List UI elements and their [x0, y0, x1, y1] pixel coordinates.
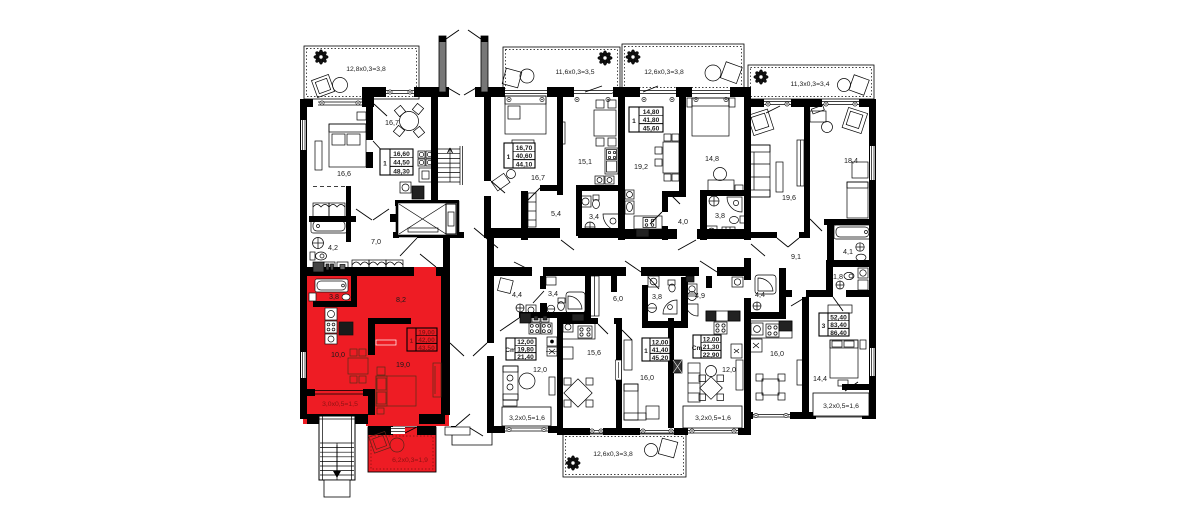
svg-text:12,00: 12,00 [652, 339, 669, 346]
svg-text:11,6x0,3=3,5: 11,6x0,3=3,5 [556, 69, 595, 76]
svg-text:12,00: 12,00 [703, 336, 720, 343]
svg-text:15,1: 15,1 [578, 157, 592, 166]
svg-text:43,50: 43,50 [418, 345, 435, 352]
svg-text:1: 1 [644, 348, 648, 355]
svg-text:3,0x0,5=1,5: 3,0x0,5=1,5 [322, 401, 358, 408]
svg-text:16,0: 16,0 [770, 349, 784, 358]
svg-text:4,4: 4,4 [512, 290, 522, 299]
svg-text:14,80: 14,80 [643, 109, 660, 116]
svg-text:3,2x0,5=1,6: 3,2x0,5=1,6 [823, 403, 859, 410]
svg-text:4,1: 4,1 [843, 247, 853, 256]
svg-text:21,40: 21,40 [517, 354, 534, 361]
svg-text:19,00: 19,00 [418, 329, 435, 336]
svg-text:15,6: 15,6 [587, 348, 601, 357]
svg-text:19,2: 19,2 [634, 162, 648, 171]
svg-text:3,8: 3,8 [715, 211, 725, 220]
svg-text:3,4: 3,4 [548, 289, 558, 298]
svg-text:41,40: 41,40 [652, 347, 669, 354]
svg-text:52,40: 52,40 [830, 314, 847, 321]
svg-text:6,2x0,3=1,9: 6,2x0,3=1,9 [392, 457, 428, 464]
svg-text:1,8: 1,8 [833, 272, 843, 281]
svg-text:44,10: 44,10 [516, 161, 533, 168]
svg-text:12,6x0,3=3,8: 12,6x0,3=3,8 [644, 69, 684, 76]
svg-text:19,80: 19,80 [517, 347, 534, 354]
svg-text:12,0: 12,0 [533, 365, 547, 374]
svg-text:1: 1 [383, 161, 387, 168]
svg-text:14,8: 14,8 [705, 154, 719, 163]
svg-text:12,8x0,3=3,8: 12,8x0,3=3,8 [346, 66, 386, 73]
svg-text:16,70: 16,70 [516, 145, 533, 152]
svg-text:4,0: 4,0 [678, 217, 688, 226]
svg-text:3: 3 [822, 323, 826, 330]
svg-text:4,2: 4,2 [328, 243, 338, 252]
svg-text:48,30: 48,30 [393, 168, 410, 175]
svg-text:16,7: 16,7 [385, 118, 399, 127]
svg-text:14,4: 14,4 [813, 374, 827, 383]
svg-text:44,50: 44,50 [393, 160, 410, 167]
svg-text:16,0: 16,0 [640, 373, 654, 382]
svg-text:19,6: 19,6 [782, 193, 796, 202]
svg-text:1: 1 [410, 338, 414, 345]
svg-text:Cm: Cm [505, 347, 516, 354]
svg-text:18,4: 18,4 [844, 156, 858, 165]
svg-text:4,9: 4,9 [695, 291, 705, 300]
svg-text:3,2x0,5=1,6: 3,2x0,5=1,6 [509, 415, 545, 422]
svg-text:3,4: 3,4 [589, 212, 599, 221]
svg-text:9,1: 9,1 [791, 252, 801, 261]
svg-text:86,40: 86,40 [830, 330, 847, 337]
svg-text:3,8: 3,8 [652, 292, 662, 301]
svg-text:1: 1 [632, 118, 636, 125]
svg-text:3,2x0,5=1,6: 3,2x0,5=1,6 [695, 415, 731, 422]
svg-text:1: 1 [507, 154, 511, 161]
svg-text:83,40: 83,40 [830, 322, 847, 329]
svg-text:41,80: 41,80 [643, 117, 660, 124]
svg-text:16,6: 16,6 [337, 169, 351, 178]
svg-text:11,3x0,3=3,4: 11,3x0,3=3,4 [791, 81, 830, 88]
svg-text:12,00: 12,00 [517, 339, 534, 346]
svg-text:16,60: 16,60 [393, 151, 410, 158]
svg-text:12,6x0,3=3,8: 12,6x0,3=3,8 [593, 451, 633, 458]
svg-text:5,4: 5,4 [551, 209, 561, 218]
svg-text:45,60: 45,60 [643, 125, 660, 132]
svg-text:42,00: 42,00 [418, 337, 435, 344]
svg-text:3,8: 3,8 [329, 292, 339, 301]
svg-text:12,0: 12,0 [722, 365, 736, 374]
svg-text:21,30: 21,30 [703, 344, 720, 351]
svg-text:40,60: 40,60 [516, 153, 533, 160]
svg-text:16,7: 16,7 [531, 173, 545, 182]
svg-text:6,0: 6,0 [613, 294, 623, 303]
svg-text:10,0: 10,0 [331, 350, 345, 359]
svg-text:4,4: 4,4 [755, 290, 765, 299]
svg-text:Cm: Cm [692, 345, 703, 352]
svg-text:7,0: 7,0 [371, 237, 381, 246]
svg-text:19,0: 19,0 [396, 360, 410, 369]
svg-text:8,2: 8,2 [396, 295, 406, 304]
svg-text:45,20: 45,20 [652, 355, 669, 362]
svg-text:22,90: 22,90 [703, 352, 720, 359]
